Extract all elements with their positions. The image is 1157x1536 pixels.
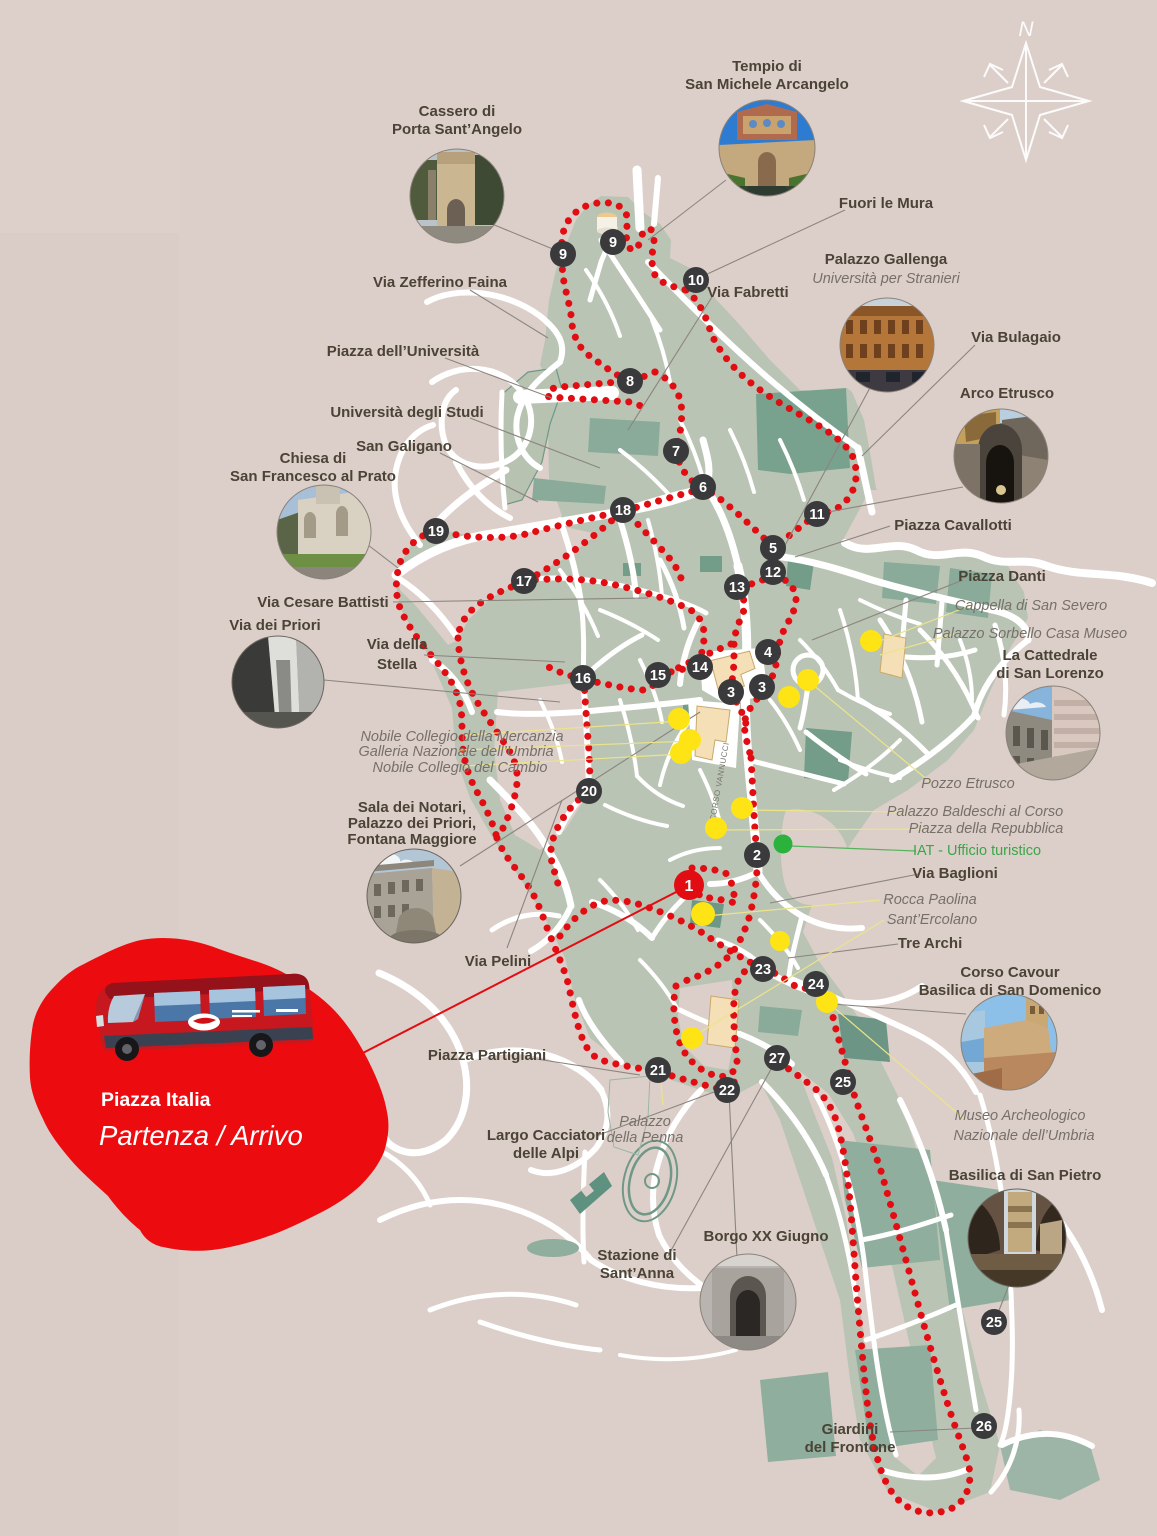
svg-text:23: 23: [755, 962, 771, 978]
svg-text:Galleria Nazionale dell’Umbria: Galleria Nazionale dell’Umbria: [358, 744, 553, 760]
svg-text:26: 26: [976, 1419, 992, 1435]
svg-text:Piazza Italia: Piazza Italia: [101, 1089, 211, 1111]
svg-text:San Francesco al Prato: San Francesco al Prato: [230, 468, 396, 485]
svg-text:Fontana Maggiore: Fontana Maggiore: [347, 831, 476, 848]
svg-text:5: 5: [769, 541, 777, 557]
svg-text:Museo Archeologico: Museo Archeologico: [955, 1108, 1086, 1124]
svg-text:Partenza / Arrivo: Partenza / Arrivo: [99, 1120, 303, 1151]
svg-text:Basilica di San Domenico: Basilica di San Domenico: [919, 982, 1102, 999]
svg-text:N: N: [1018, 18, 1034, 41]
svg-text:Palazzo Sorbello Casa Museo: Palazzo Sorbello Casa Museo: [933, 626, 1127, 642]
svg-text:Nobile Collegio del Cambio: Nobile Collegio del Cambio: [373, 760, 548, 776]
svg-text:Rocca Paolina: Rocca Paolina: [883, 892, 977, 908]
svg-text:25: 25: [986, 1315, 1002, 1331]
svg-text:20: 20: [581, 784, 597, 800]
svg-text:Via Bulagaio: Via Bulagaio: [971, 329, 1061, 346]
svg-text:delle Alpi: delle Alpi: [513, 1145, 579, 1162]
svg-text:8: 8: [626, 374, 634, 390]
svg-text:Borgo XX Giugno: Borgo XX Giugno: [704, 1228, 829, 1245]
svg-text:12: 12: [765, 565, 781, 581]
svg-text:Palazzo Baldeschi al Corso: Palazzo Baldeschi al Corso: [887, 804, 1064, 820]
svg-text:Sala dei Notari,: Sala dei Notari,: [358, 799, 466, 816]
svg-text:27: 27: [769, 1051, 785, 1067]
svg-text:Cassero di: Cassero di: [419, 103, 496, 120]
svg-text:Piazza Danti: Piazza Danti: [958, 568, 1046, 585]
svg-text:Piazza Partigiani: Piazza Partigiani: [428, 1047, 546, 1064]
svg-text:16: 16: [575, 671, 591, 687]
svg-text:Palazzo Gallenga: Palazzo Gallenga: [825, 251, 948, 268]
svg-text:Largo Cacciatori: Largo Cacciatori: [487, 1127, 605, 1144]
svg-text:Via Zefferino Faina: Via Zefferino Faina: [373, 274, 508, 291]
svg-text:11: 11: [809, 507, 824, 523]
svg-text:Via della: Via della: [367, 636, 428, 653]
svg-text:Fuori le Mura: Fuori le Mura: [839, 195, 934, 212]
svg-text:3: 3: [758, 680, 766, 696]
svg-text:della Penna: della Penna: [607, 1130, 684, 1146]
svg-text:del Frontone: del Frontone: [805, 1439, 896, 1456]
svg-text:Piazza dell’Università: Piazza dell’Università: [327, 343, 480, 360]
svg-text:2: 2: [753, 848, 761, 864]
svg-text:San Galigano: San Galigano: [356, 438, 452, 455]
svg-text:Chiesa di: Chiesa di: [280, 450, 347, 467]
svg-text:1: 1: [685, 878, 694, 895]
svg-text:Stazione di: Stazione di: [597, 1247, 676, 1264]
svg-text:25: 25: [835, 1075, 851, 1091]
svg-text:Nazionale dell’Umbria: Nazionale dell’Umbria: [953, 1128, 1094, 1144]
svg-text:21: 21: [650, 1063, 666, 1079]
svg-text:18: 18: [615, 503, 631, 519]
svg-text:9: 9: [559, 247, 567, 263]
svg-text:Sant’Ercolano: Sant’Ercolano: [887, 912, 977, 928]
svg-text:Via Fabretti: Via Fabretti: [707, 284, 788, 301]
svg-text:22: 22: [719, 1083, 735, 1099]
svg-text:Arco Etrusco: Arco Etrusco: [960, 385, 1054, 402]
svg-text:Tempio di: Tempio di: [732, 58, 802, 75]
svg-text:Palazzo dei Priori,: Palazzo dei Priori,: [348, 815, 476, 832]
svg-text:Via dei Priori: Via dei Priori: [229, 617, 320, 634]
svg-text:San Michele Arcangelo: San Michele Arcangelo: [685, 76, 849, 93]
svg-text:14: 14: [692, 660, 708, 676]
svg-text:Piazza Cavallotti: Piazza Cavallotti: [894, 517, 1012, 534]
svg-text:24: 24: [808, 977, 824, 993]
svg-text:9: 9: [609, 235, 617, 251]
svg-text:Palazzo: Palazzo: [619, 1114, 671, 1130]
svg-text:Basilica di San Pietro: Basilica di San Pietro: [949, 1167, 1102, 1184]
svg-text:Via Baglioni: Via Baglioni: [912, 865, 998, 882]
svg-text:Piazza della Repubblica: Piazza della Repubblica: [909, 821, 1064, 837]
svg-text:Corso Cavour: Corso Cavour: [960, 964, 1059, 981]
svg-text:Sant’Anna: Sant’Anna: [600, 1265, 675, 1282]
svg-text:Tre Archi: Tre Archi: [898, 935, 962, 952]
svg-text:15: 15: [650, 668, 666, 684]
svg-text:7: 7: [672, 444, 680, 460]
svg-text:Via Cesare Battisti: Via Cesare Battisti: [257, 594, 388, 611]
svg-text:13: 13: [729, 580, 745, 596]
svg-text:Università per Stranieri: Università per Stranieri: [812, 271, 960, 287]
svg-text:17: 17: [516, 574, 532, 590]
svg-text:19: 19: [428, 524, 444, 540]
svg-text:10: 10: [688, 273, 704, 289]
svg-text:IAT - Ufficio turistico: IAT - Ufficio turistico: [913, 843, 1041, 859]
svg-text:Stella: Stella: [377, 656, 418, 673]
svg-text:Università degli Studi: Università degli Studi: [330, 404, 483, 421]
svg-text:di San Lorenzo: di San Lorenzo: [996, 665, 1104, 682]
svg-text:6: 6: [699, 480, 707, 496]
svg-text:Pozzo Etrusco: Pozzo Etrusco: [921, 776, 1015, 792]
svg-text:Porta Sant’Angelo: Porta Sant’Angelo: [392, 121, 522, 138]
svg-text:4: 4: [764, 645, 772, 661]
svg-text:Nobile Collegio della Mercanzi: Nobile Collegio della Mercanzia: [360, 729, 563, 745]
svg-text:3: 3: [727, 685, 735, 701]
svg-text:Cappella di San Severo: Cappella di San Severo: [955, 598, 1107, 614]
svg-text:La Cattedrale: La Cattedrale: [1002, 647, 1097, 664]
svg-text:Giardini: Giardini: [822, 1421, 879, 1438]
svg-text:Via Pelini: Via Pelini: [465, 953, 531, 970]
